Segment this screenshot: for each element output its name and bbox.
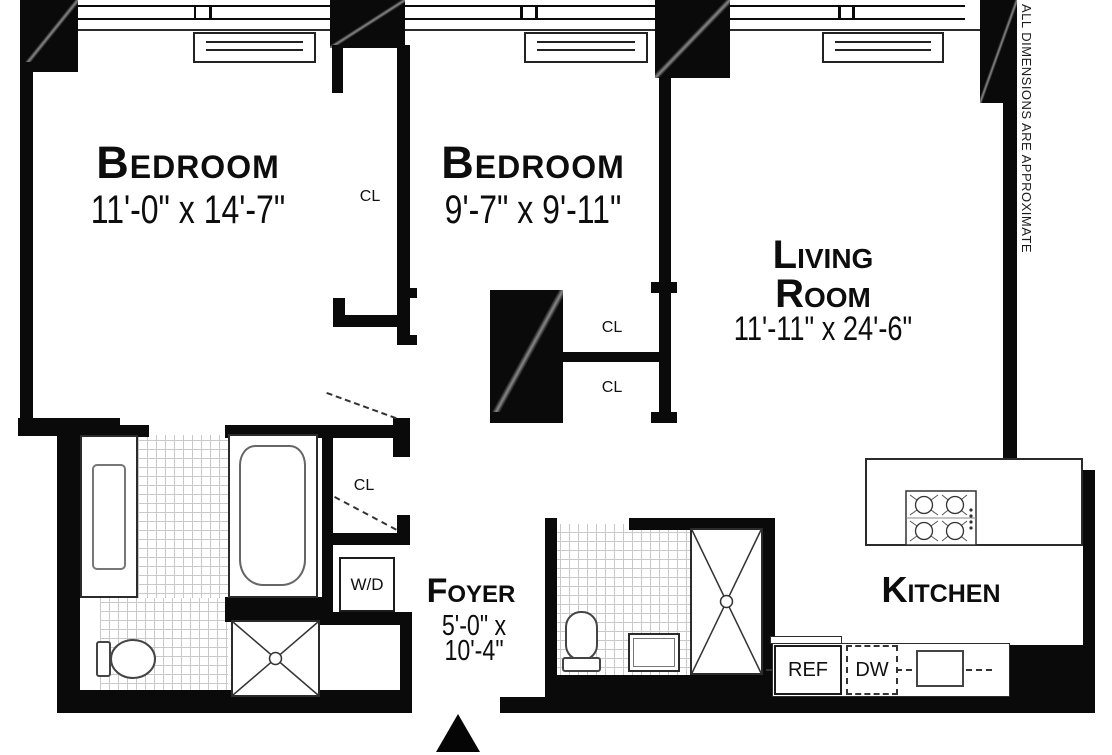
wall — [557, 352, 667, 362]
window — [405, 5, 655, 20]
foyer-dimensions-line2: 10'-4" — [374, 637, 574, 666]
radiator — [193, 32, 316, 63]
radiator — [524, 32, 648, 63]
bedroom1-dimensions: 11'-0" x 14'-7" — [88, 190, 288, 230]
dishwasher-label: DW — [855, 659, 888, 682]
foyer-label: Foyer — [346, 574, 596, 608]
radiator-fins — [537, 41, 635, 55]
shower-pan — [231, 620, 320, 697]
bathtub-basin — [239, 445, 306, 586]
bedroom2-label: Bedroom — [408, 140, 658, 185]
wall-line — [405, 29, 655, 31]
wall — [651, 412, 677, 423]
door-swing — [334, 496, 397, 531]
closet-label: CL — [344, 478, 384, 494]
wall-line — [730, 29, 1003, 31]
dishwasher: DW — [846, 645, 898, 695]
wall — [1083, 470, 1095, 660]
counter-edge — [770, 636, 842, 644]
wall — [397, 515, 410, 545]
column — [330, 0, 405, 48]
wall — [405, 288, 417, 298]
window-mullion — [535, 7, 538, 18]
wall — [1003, 103, 1017, 482]
column — [655, 0, 730, 78]
wall — [397, 45, 410, 343]
wall — [333, 533, 397, 545]
vanity-sink — [92, 464, 126, 570]
wall — [20, 62, 33, 422]
wall — [322, 430, 333, 612]
refrigerator-label: REF — [788, 659, 828, 682]
window-mullion — [194, 7, 197, 18]
radiator — [822, 32, 944, 63]
entry-arrow — [436, 714, 480, 752]
closet-label: CL — [350, 189, 390, 205]
living-room-label-line1: Living — [698, 235, 948, 275]
wall — [659, 77, 671, 423]
living-room-label-line2: Room — [698, 274, 948, 314]
disclaimer-text: ALL DIMENSIONS ARE APPROXIMATE — [1019, 4, 1034, 244]
wall — [393, 418, 410, 457]
bathroom-sink-basin — [633, 638, 675, 667]
kitchen-label: Kitchen — [816, 572, 1066, 608]
wall — [332, 45, 343, 93]
shower-pan — [690, 528, 763, 675]
refrigerator: REF — [774, 645, 842, 695]
wall — [57, 427, 80, 713]
wall — [651, 282, 677, 293]
window-mullion — [209, 7, 212, 18]
window-mullion — [852, 7, 855, 18]
closet-label: CL — [592, 380, 632, 396]
wall — [225, 597, 330, 622]
column — [980, 0, 1017, 103]
window-mullion — [838, 7, 841, 18]
door-swing — [326, 392, 396, 419]
wall — [490, 412, 563, 423]
bedroom1-label: Bedroom — [63, 140, 313, 185]
window — [78, 5, 330, 20]
cooktop — [905, 490, 977, 546]
floor-plan: W/D REF DW Bedroom 11'-0 — [0, 0, 1112, 755]
wall — [333, 315, 403, 327]
wall — [490, 290, 563, 423]
toilet — [95, 636, 159, 682]
kitchen-sink — [916, 650, 964, 687]
radiator-fins — [835, 41, 932, 55]
wall — [1010, 645, 1095, 705]
window — [730, 5, 965, 20]
wall — [397, 335, 417, 345]
wall — [545, 675, 775, 713]
living-room-dimensions: 11'-11" x 24'-6" — [723, 312, 923, 346]
radiator-fins — [206, 41, 304, 55]
window-mullion — [520, 7, 523, 18]
closet-label: CL — [592, 320, 632, 336]
bedroom2-dimensions: 9'-7" x 9'-11" — [433, 190, 633, 230]
